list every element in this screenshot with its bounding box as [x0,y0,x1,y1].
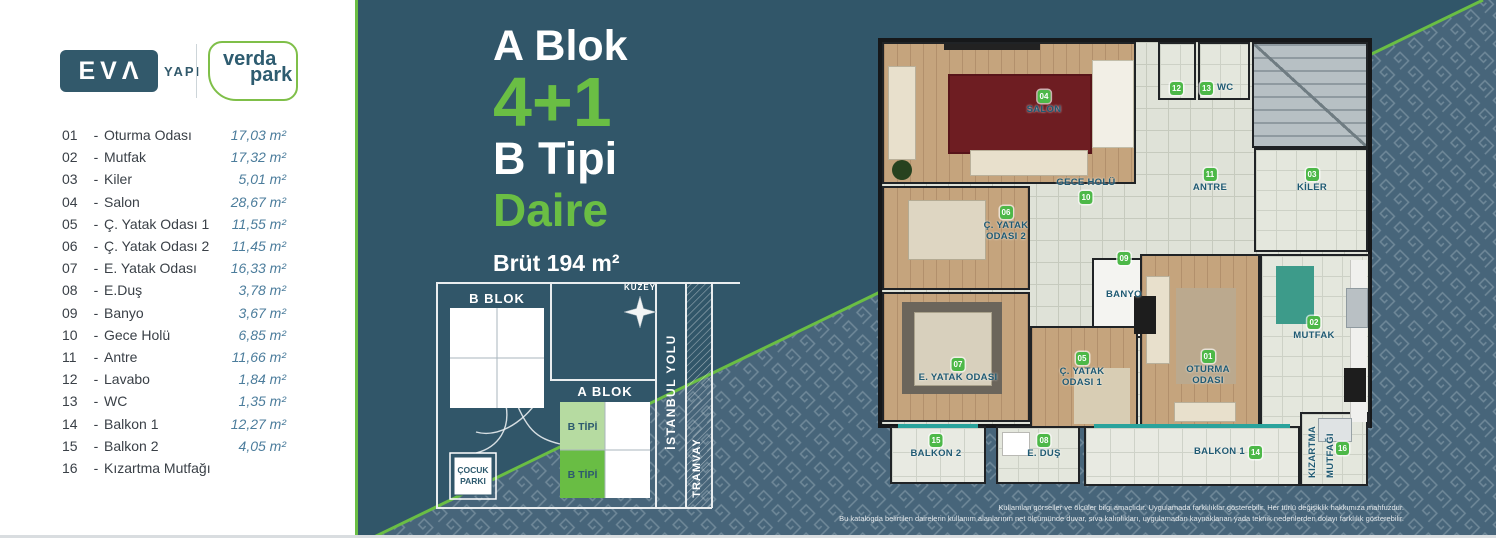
room-label: BALKON 1 [1194,447,1245,458]
title-type: B Tipi [493,134,628,184]
floorplan-stairs [1252,42,1368,148]
room-badge: 09 [1118,252,1131,265]
room-label: KİLER [1297,183,1327,194]
room-badge: 05 [1076,352,1089,365]
salon-rug [948,74,1092,154]
room-tag-mutfak: 02 MUTFAK [1293,316,1334,342]
compass-icon [624,296,656,328]
cocuk-parki-label2: PARKI [460,476,486,486]
room-tag-kiler: 03 KİLER [1297,168,1327,194]
room-label: MUTFAK [1293,331,1334,342]
room-tag-salon: 04 SALON [1027,90,1062,116]
room-badge-kizartma: 16 [1336,442,1349,455]
sofa [888,66,916,160]
istanbul-yolu-label: İSTANBUL YOLU [663,334,678,450]
room-tag-e-dus: 08 E. DUŞ [1027,434,1060,460]
room-badge: 02 [1307,316,1320,329]
room-label: Ç. YATAK ODASI 2 [970,221,1042,242]
room-label: GECE HOLÜ [1056,178,1115,189]
disclaimer-line1: Kullanılan görseller ve ölçüler bilgi am… [824,502,1404,513]
site-plan: B BLOK A BLOK B TİPİ B TİPİ ÇOCUK PARKI … [434,272,744,512]
dining-table [1092,60,1134,148]
stove-appliance [1344,368,1366,402]
panel-divider-line [355,0,358,538]
room-badge: 01 [1202,350,1215,363]
room-tag-c-yatak-1: 05 Ç. YATAK ODASI 1 [1046,352,1118,388]
title-room-count: 4+1 [493,70,628,134]
brochure-page: EVΛ YAPI verda park 01-Oturma Odası17,03… [0,0,1496,538]
b-tipi-label-top: B TİPİ [568,420,598,433]
room-tag-wc: 13 WC [1200,82,1233,95]
room-tag-kizartma: KIZARTMA MUTFAĞI [1302,422,1338,478]
sofa [970,150,1088,176]
room-label: BALKON 2 [911,449,962,460]
room-label: E. YATAK ODASI [919,373,998,384]
b-tipi-label-bottom: B TİPİ [568,468,598,481]
room-label: SALON [1027,105,1062,116]
room-badge: 15 [930,434,943,447]
balcony-window-sill [898,424,978,428]
b-blok-label: B BLOK [469,291,525,306]
room-label: E. DUŞ [1027,449,1060,460]
room-badge: 07 [952,358,965,371]
room-label-banyo: BANYO [1106,290,1142,301]
unit-title-block: A Blok 4+1 B Tipi Daire Brüt 194 m² [493,22,628,276]
room-badge: 08 [1037,434,1050,447]
room-badge: 14 [1249,446,1262,459]
room-label: Ç. YATAK ODASI 1 [1046,367,1118,388]
room-tag-c-yatak-2: 06 Ç. YATAK ODASI 2 [970,206,1042,242]
room-badge: 06 [1000,206,1013,219]
room-tag-antre: 11 ANTRE [1193,168,1227,194]
shower-fixture [1002,432,1030,456]
tv-unit [944,44,1040,50]
room-badge: 13 [1200,82,1213,95]
room-badge: 11 [1203,168,1216,181]
room-label: ANTRE [1193,183,1227,194]
kitchen-sink [1346,288,1368,328]
room-tag-e-yatak: 07 E. YATAK ODASI [919,358,998,384]
room-tag-oturma: 01 OTURMA ODASI [1178,350,1238,386]
floor-plan: 04 SALON 06 Ç. YATAK ODASI 2 07 E. YATAK… [878,38,1372,490]
room-label: OTURMA ODASI [1178,365,1238,386]
disclaimer-line2: Bu katalogda belirtilen dairelerin kulla… [824,513,1404,524]
room-tag-balkon-2: 15 BALKON 2 [911,434,962,460]
floorplan-room-balkon-1 [1084,426,1300,486]
room-tag-gece-holu: GECE HOLÜ 10 [1056,178,1115,204]
plant [892,160,912,180]
disclaimer: Kullanılan görseller ve ölçüler bilgi am… [824,502,1404,524]
tramvay-label: TRAMVAY [691,438,703,498]
room-badge-lavabo: 12 [1170,82,1183,95]
kuzey-label: KUZEY [624,283,656,292]
title-unit: Daire [493,184,628,236]
room-badge: 03 [1306,168,1319,181]
floorplan-room-kiler [1254,148,1368,252]
room-badge: 04 [1038,90,1051,103]
room-label: KIZARTMA MUTFAĞI [1307,426,1336,478]
room-tag-balkon-1: BALKON 1 14 [1194,446,1262,459]
a-blok-label: A BLOK [577,384,632,399]
cocuk-parki-label1: ÇOCUK [457,465,489,475]
room-badge: 10 [1080,191,1093,204]
room-tag-banyo: 09 [1118,252,1131,265]
banyo-dark-tile [1134,296,1156,334]
room-label: WC [1217,83,1233,94]
sofa [1174,402,1236,422]
balcony-window-sill [1094,424,1290,428]
